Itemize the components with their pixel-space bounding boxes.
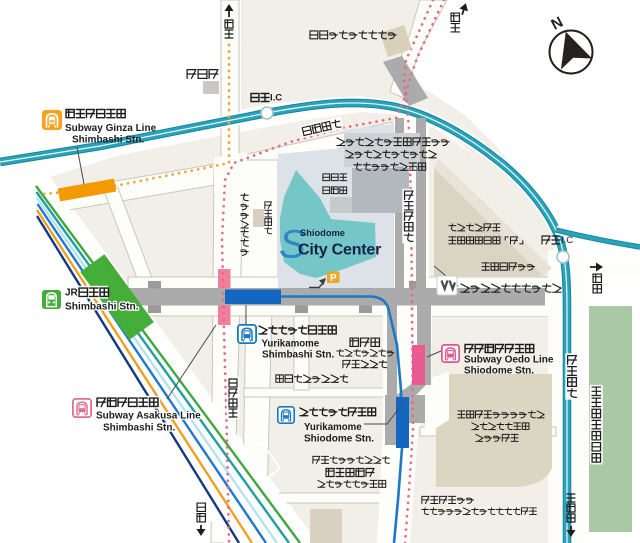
svg-text:Shimbashi Stn.: Shimbashi Stn. bbox=[262, 350, 334, 361]
svg-text:P: P bbox=[330, 273, 337, 284]
svg-text:Shimbashi Stn.: Shimbashi Stn. bbox=[65, 302, 139, 313]
svg-text:Subway Ginza Line: Subway Ginza Line bbox=[65, 123, 157, 134]
svg-text:I.C: I.C bbox=[561, 235, 573, 246]
svg-text:Shiodome: Shiodome bbox=[300, 228, 345, 238]
svg-text:Subway Oedo Line: Subway Oedo Line bbox=[464, 355, 554, 366]
svg-text:Yurikamome: Yurikamome bbox=[304, 422, 362, 433]
svg-text:Subway Asakusa Line: Subway Asakusa Line bbox=[96, 411, 201, 422]
svg-text:I.C: I.C bbox=[270, 93, 282, 104]
svg-text:Shimbashi Stn.: Shimbashi Stn. bbox=[103, 423, 175, 434]
svg-text:Shiodome Stn.: Shiodome Stn. bbox=[464, 366, 534, 377]
svg-text:City Center: City Center bbox=[298, 242, 381, 259]
svg-text:Yurikamome: Yurikamome bbox=[262, 339, 320, 350]
svg-text:Shiodome Stn.: Shiodome Stn. bbox=[304, 434, 374, 445]
svg-text:Shimbashi Stn.: Shimbashi Stn. bbox=[72, 135, 144, 146]
svg-text:JR: JR bbox=[65, 288, 79, 299]
